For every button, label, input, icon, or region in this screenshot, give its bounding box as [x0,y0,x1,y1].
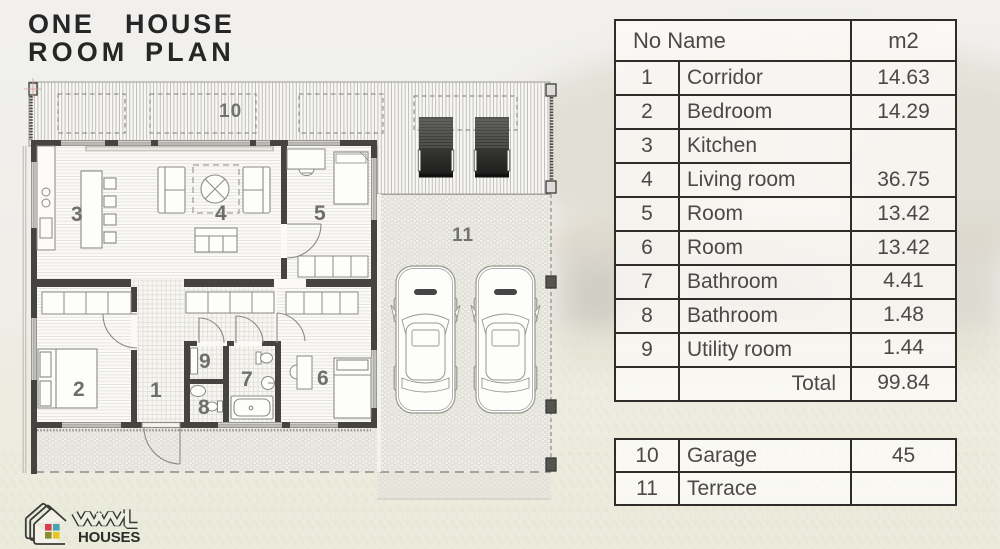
svg-text:8: 8 [198,396,210,419]
svg-text:5: 5 [314,202,326,225]
svg-text:3: 3 [71,203,83,226]
svg-text:7: 7 [241,368,253,391]
svg-text:11: 11 [452,225,474,246]
svg-text:9: 9 [199,350,211,373]
svg-text:10: 10 [219,101,242,122]
svg-text:HOUSES: HOUSES [78,529,140,546]
svg-text:2: 2 [73,378,85,401]
svg-text:4: 4 [215,202,227,225]
svg-text:1: 1 [150,379,162,402]
svg-text:6: 6 [317,367,329,390]
